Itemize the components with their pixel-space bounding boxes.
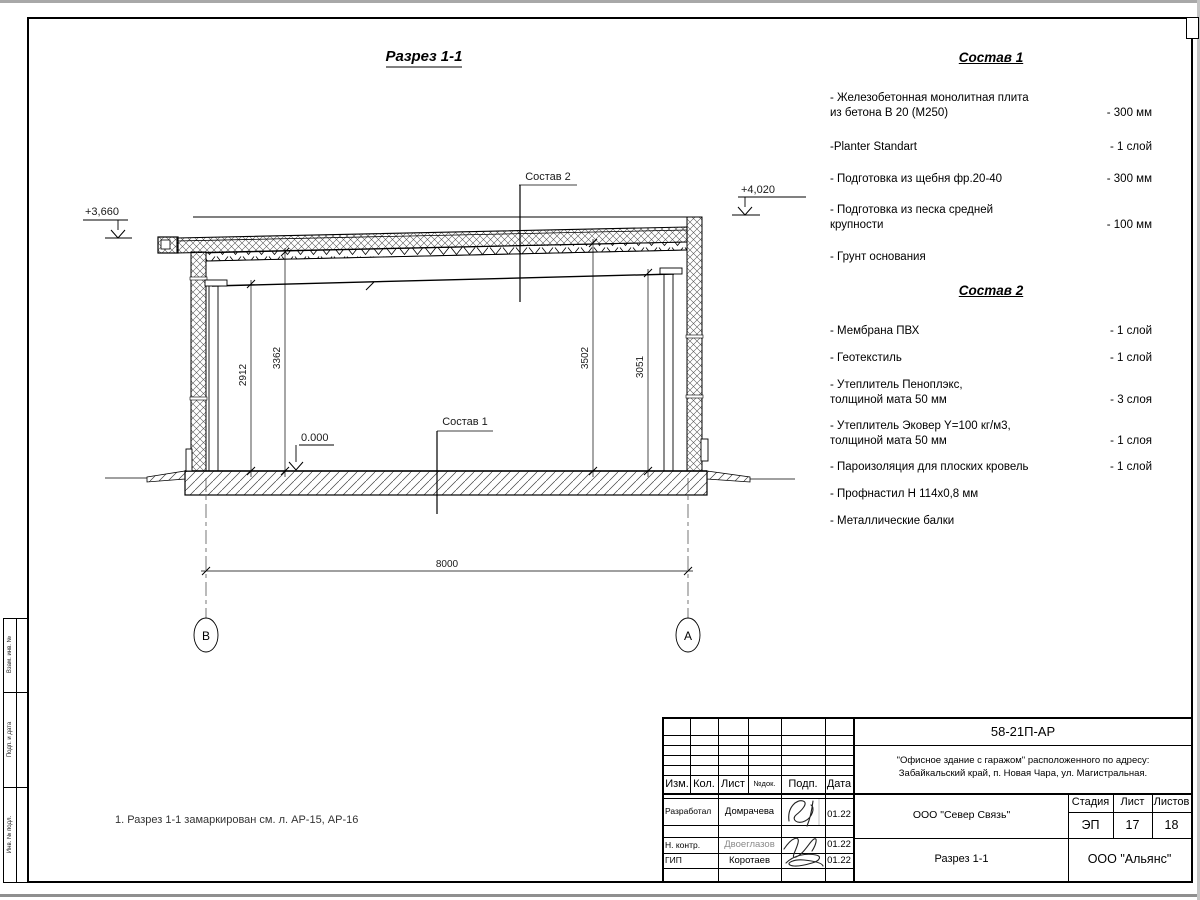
composition-item: - Подготовка из песка средней крупности …	[830, 203, 1152, 233]
elevation-floor: 0.000	[289, 432, 334, 470]
side-stamp-label: Подп. и дата	[4, 693, 16, 786]
wall-joint	[686, 335, 703, 338]
composition1-panel: Состав 1 - Железобетонная монолитная пли…	[830, 50, 1152, 280]
row-role: ГИП	[665, 853, 718, 868]
row-role: Н. контр.	[665, 837, 718, 853]
sostav2-callout: Состав 2	[525, 171, 571, 183]
col-header-podp: Подп.	[781, 775, 825, 793]
row-date: 01.22	[825, 837, 853, 853]
composition-item: - Пароизоляция для плоских кровель - 1 с…	[830, 460, 1152, 475]
svg-text:2912: 2912	[238, 363, 249, 386]
elevation-left-label: +3,660	[85, 206, 119, 218]
wall-right	[687, 217, 702, 471]
dim-3051: 3051	[635, 269, 652, 477]
elevation-right-label: +4,020	[741, 184, 775, 196]
sheet-edge-bottom	[0, 894, 1200, 897]
composition-item: -Planter Standart - 1 слой	[830, 140, 1152, 155]
axis-letter-right: А	[684, 629, 692, 643]
apron-right	[707, 471, 750, 482]
org-cell: ООО "Север Связь"	[855, 793, 1068, 838]
side-stamp-label: Взам. инв. №	[4, 618, 16, 691]
floor-slab	[185, 471, 707, 495]
composition-item: - Утеплитель Эковер Y=100 кг/м3, толщино…	[830, 419, 1152, 449]
section-drawing: Разрез 1-1 Состав 2 Состав 1	[60, 40, 820, 660]
signature-gip	[780, 833, 826, 873]
leader-sostav1: Состав 1	[437, 416, 493, 514]
dim-3362: 3362	[272, 248, 289, 477]
beam-break-mark	[366, 282, 374, 290]
col-header-kol: Кол.	[690, 775, 718, 793]
svg-text:3502: 3502	[580, 346, 591, 369]
doc-number: 58-21П-АР	[855, 719, 1191, 745]
wall-joint	[190, 397, 207, 400]
plinth-left	[186, 449, 192, 471]
col-header-ndok: №док.	[748, 775, 781, 793]
composition-item: - Подготовка из щебня фр.20-40 - 300 мм	[830, 172, 1152, 187]
listov-label: Листов	[1152, 793, 1191, 812]
dim-span: 8000	[201, 559, 693, 575]
apron-left	[147, 471, 185, 482]
row-name: Двоеглазов	[718, 837, 781, 853]
row-name: Коротаев	[718, 853, 781, 868]
composition-item: - Профнастил Н 114х0,8 мм	[830, 487, 1152, 502]
plinth-right	[701, 439, 708, 461]
col-header-list: Лист	[718, 775, 748, 793]
list-value: 17	[1113, 812, 1152, 838]
wall-left	[191, 252, 206, 471]
column-capital-right	[660, 268, 682, 274]
title-block: Изм. Кол. Лист №док. Подп. Дата Разработ…	[662, 717, 1193, 883]
dim-3502: 3502	[580, 239, 597, 477]
sheet-name-cell: Разрез 1-1	[855, 838, 1068, 881]
listov-value: 18	[1152, 812, 1191, 838]
project-address-line1: "Офисное здание с гаражом" расположенног…	[855, 754, 1191, 767]
composition-item: - Геотекстиль - 1 слой	[830, 351, 1152, 366]
list-label: Лист	[1113, 793, 1152, 812]
stage-label: Стадия	[1068, 793, 1113, 812]
row-date: 01.22	[825, 804, 853, 825]
signature-developer	[783, 795, 825, 829]
elevation-right: +4,020	[732, 184, 806, 215]
row-name: Домрачева	[718, 798, 781, 825]
beam-line	[212, 274, 674, 286]
svg-text:3051: 3051	[635, 355, 646, 378]
note-text: 1. Разрез 1-1 замаркирован см. л. АР-15,…	[115, 814, 358, 826]
composition-item: - Утеплитель Пеноплэкс, толщиной мата 50…	[830, 378, 1152, 408]
dim-2912: 2912	[238, 280, 255, 477]
row-role: Разработал	[665, 798, 718, 825]
composition-item: - Грунт основания	[830, 250, 1152, 265]
sheet-edge-top	[0, 0, 1200, 3]
project-address-line2: Забайкальский край, п. Новая Чара, ул. М…	[855, 767, 1191, 780]
composition2-title: Состав 2	[830, 283, 1152, 298]
composition-item: - Мембрана ПВХ - 1 слой	[830, 324, 1152, 339]
drawing-title: Разрез 1-1	[385, 48, 462, 65]
composition-item: - Металлические балки	[830, 514, 1152, 529]
sostav1-callout: Состав 1	[442, 416, 488, 428]
col-header-data: Дата	[825, 775, 853, 793]
composition2-panel: Состав 2 - Мембрана ПВХ - 1 слой - Геоте…	[830, 283, 1152, 543]
col-header-izm: Изм.	[664, 775, 690, 793]
composition1-title: Состав 1	[830, 50, 1152, 65]
axis-letter-left: В	[202, 629, 210, 643]
wall-joint	[190, 277, 207, 280]
side-stamp-label: Инв. № подл.	[4, 788, 16, 881]
wall-joint	[686, 395, 703, 398]
elevation-floor-label: 0.000	[301, 432, 329, 444]
corner-cell	[1186, 17, 1199, 39]
column-capital-left	[205, 280, 227, 286]
composition-item: - Железобетонная монолитная плита из бет…	[830, 91, 1152, 121]
stage-value: ЭП	[1068, 812, 1113, 838]
company-cell: ООО "Альянс"	[1068, 838, 1191, 881]
row-date: 01.22	[825, 853, 853, 868]
elevation-left: +3,660	[83, 206, 132, 238]
svg-text:8000: 8000	[436, 559, 459, 570]
svg-text:3362: 3362	[272, 346, 283, 369]
roof-edge-inner	[161, 240, 170, 249]
